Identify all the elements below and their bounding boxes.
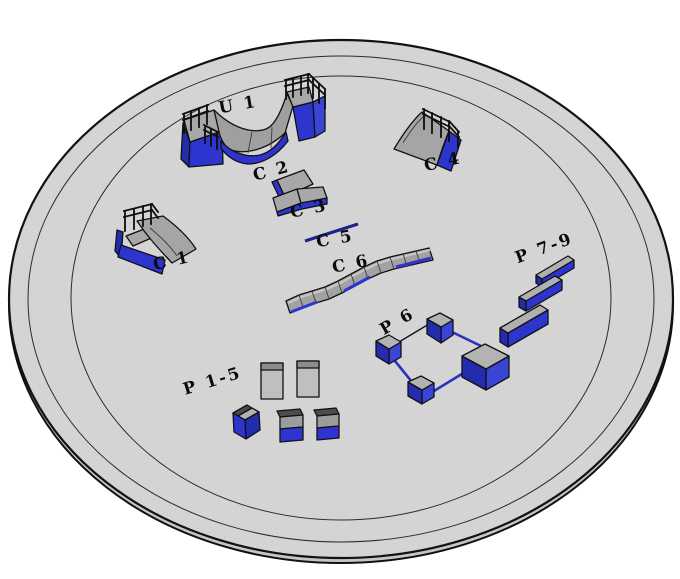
skatepark-layout-render: U 1 C 1 C 2 C 3 C 4 C 5 C 6 P 1-5 P 6 P …	[0, 0, 680, 579]
p15-pad-2	[297, 361, 319, 397]
p15-block-2	[277, 409, 303, 442]
circular-pad	[9, 40, 673, 563]
scene-canvas: U 1 C 1 C 2 C 3 C 4 C 5 C 6 P 1-5 P 6 P …	[0, 0, 680, 579]
pad-grain-texture	[9, 40, 673, 559]
p15-block-3	[314, 408, 339, 440]
p15-pad-1	[261, 363, 283, 399]
